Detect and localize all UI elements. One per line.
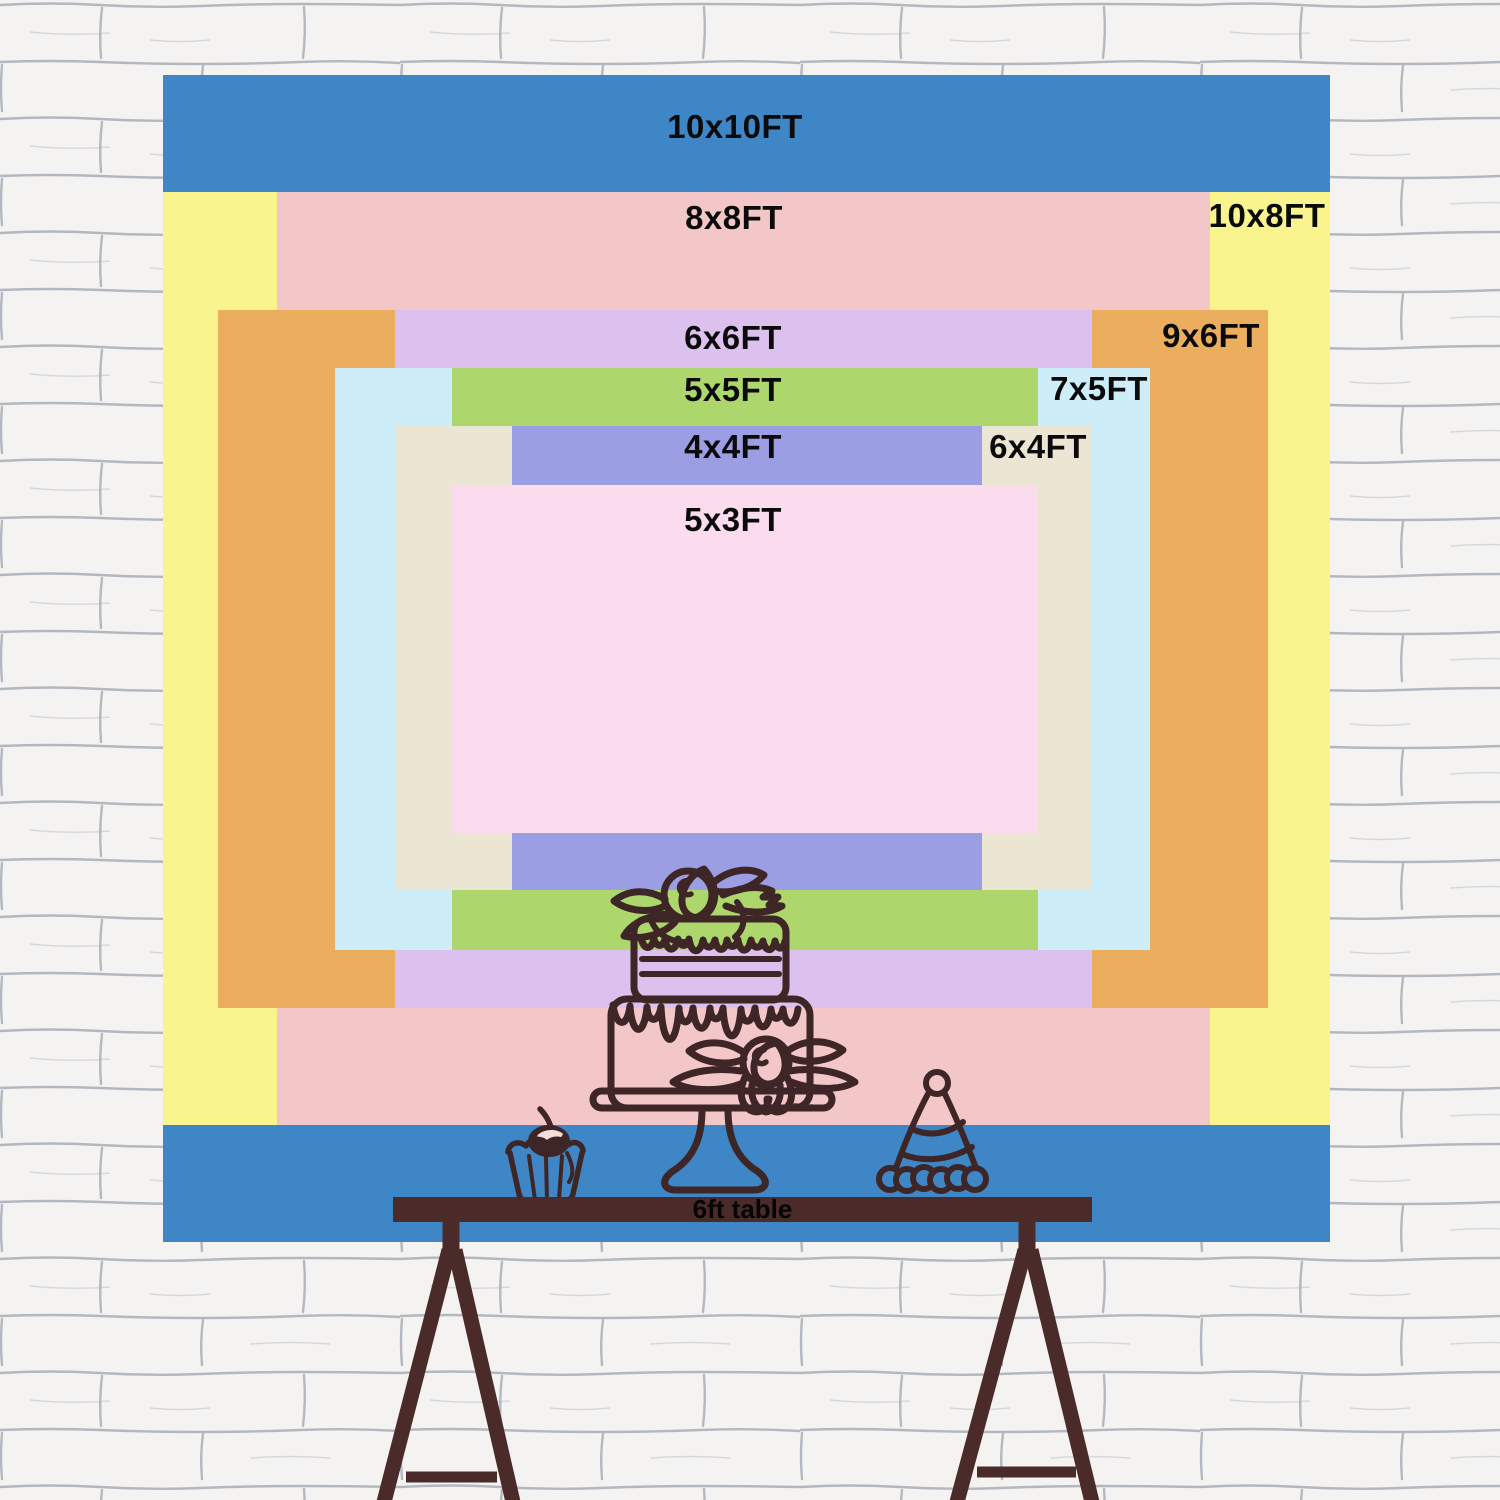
label-6x6: 6x6FT (684, 321, 782, 356)
label-10x10: 10x10FT (667, 110, 803, 145)
table-bar: 6ft table (393, 1197, 1092, 1222)
label-4x4: 4x4FT (684, 430, 782, 465)
table-label: 6ft table (693, 1197, 793, 1222)
backdrop-size-chart: 6ft table 10x10FT 8x8FT 10x8FT 6x6FT 9x6… (0, 0, 1500, 1500)
label-10x8: 10x8FT (1209, 199, 1326, 234)
label-8x8: 8x8FT (685, 201, 783, 236)
label-9x6: 9x6FT (1162, 319, 1260, 354)
label-7x5: 7x5FT (1050, 372, 1148, 407)
label-6x4: 6x4FT (989, 430, 1087, 465)
label-5x3: 5x3FT (684, 503, 782, 538)
label-5x5: 5x5FT (684, 373, 782, 408)
